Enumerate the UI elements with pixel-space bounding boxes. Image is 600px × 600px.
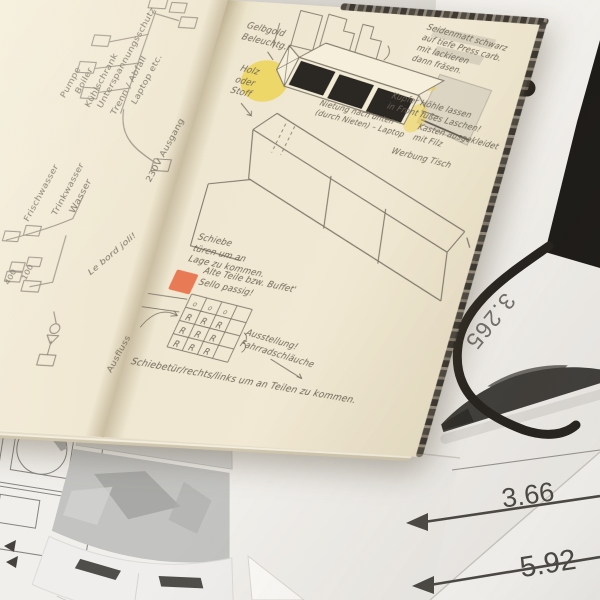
svg-text:R: R (207, 334, 217, 345)
svg-text:R: R (177, 326, 187, 337)
svg-text:o: o (191, 300, 198, 309)
svg-text:R: R (192, 330, 202, 341)
svg-text:R: R (214, 321, 224, 332)
svg-text:R: R (186, 343, 196, 354)
svg-text:R: R (183, 313, 193, 324)
photo-sketchbook-scene: 3.265 3.66 5.92 75 (0, 0, 600, 600)
svg-text:o: o (206, 304, 213, 313)
red-marker (168, 269, 199, 294)
svg-text:R: R (198, 317, 208, 328)
svg-text:R: R (201, 347, 211, 358)
svg-text:R: R (171, 339, 181, 350)
svg-text:o: o (222, 308, 229, 317)
